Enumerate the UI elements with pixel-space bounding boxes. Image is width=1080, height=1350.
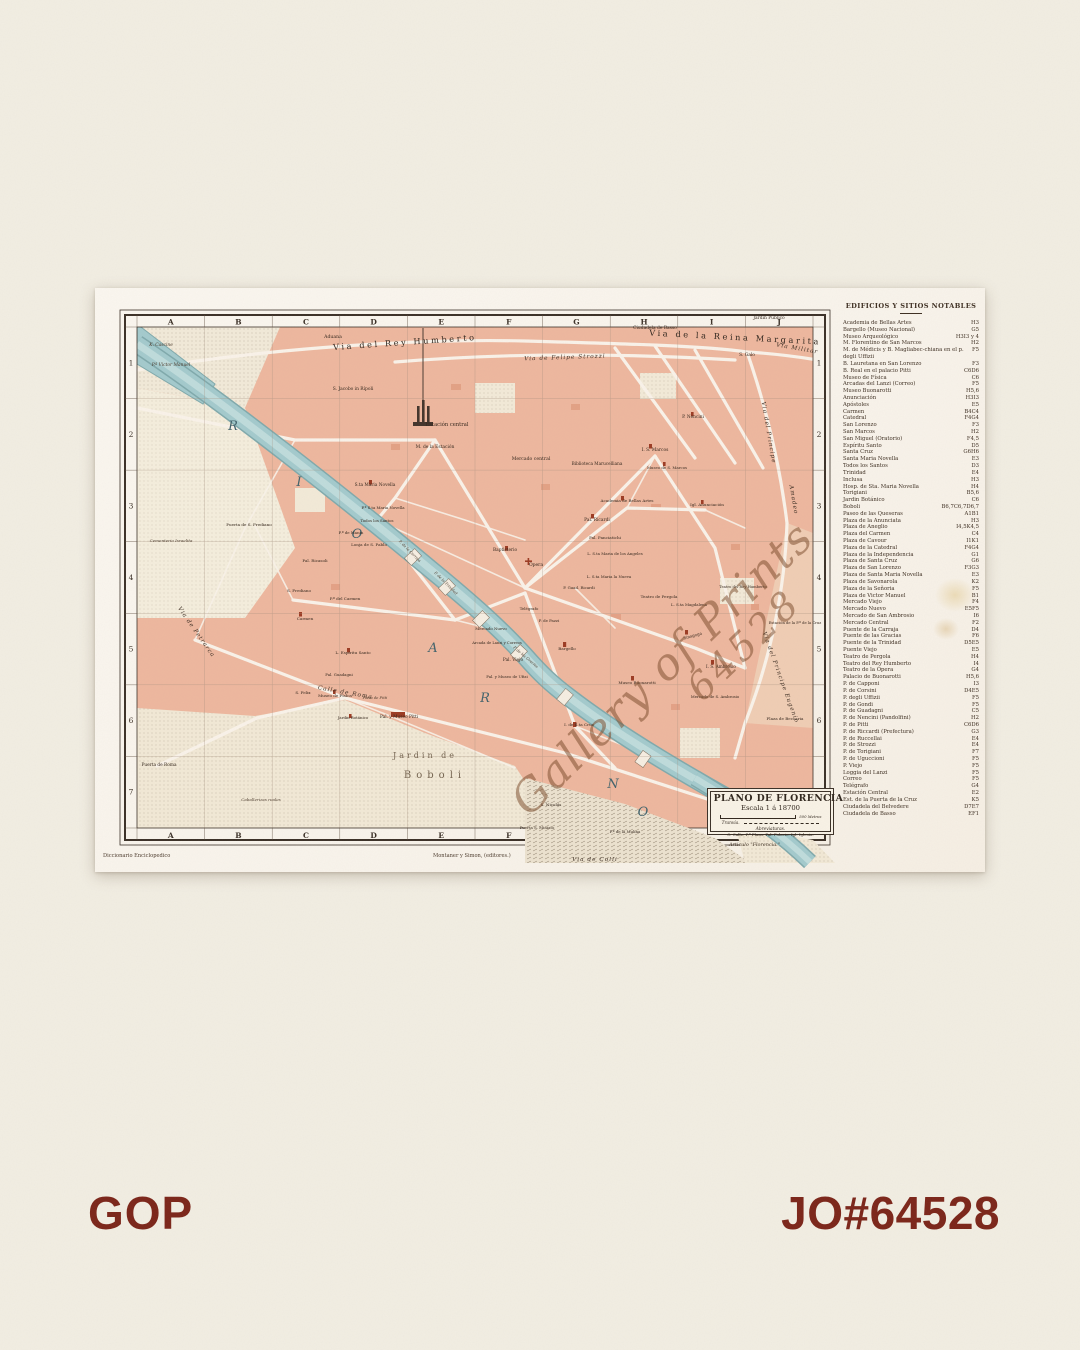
svg-text:K. Cascine: K. Cascine — [148, 343, 173, 348]
svg-text:R: R — [479, 691, 490, 706]
legend-entry: Plaza de Santa Maria NovellaE3 — [843, 572, 979, 579]
legend-entry: Teatro de la ÓperaG4 — [843, 667, 979, 674]
svg-text:Plaza de Pitti: Plaza de Pitti — [362, 696, 388, 700]
legend-entry: Espíritu SantoD5 — [843, 443, 979, 450]
svg-text:Pal. y Museo Pitti: Pal. y Museo Pitti — [380, 715, 419, 720]
legend-entry: Academia de Bellas ArtesH3 — [843, 320, 979, 327]
svg-text:S. Nicolás: S. Nicolás — [541, 802, 562, 807]
svg-text:Teatro del Rey Humberto: Teatro del Rey Humberto — [719, 585, 767, 589]
scale-bar-line — [720, 815, 797, 819]
legend-entry: CatedralF4G4 — [843, 415, 979, 422]
svg-text:P.ª Victor Manuel: P.ª Victor Manuel — [151, 362, 191, 368]
legend-entry: Mercado ViejoF4 — [843, 599, 979, 606]
legend-entry: San LorenzoF3 — [843, 422, 979, 429]
svg-text:Opera: Opera — [529, 562, 543, 568]
svg-text:Museo de Física: Museo de Física — [318, 693, 352, 698]
legend-entry: Arcadas del Lanzi (Correo)F5 — [843, 381, 979, 388]
svg-text:I. de S.ta Cruz: I. de S.ta Cruz — [564, 722, 594, 727]
svg-text:2: 2 — [817, 430, 822, 439]
svg-text:Todos los Santos: Todos los Santos — [361, 518, 394, 523]
svg-text:L. Espíritu Santo: L. Espíritu Santo — [335, 650, 371, 655]
legend-entry: San Miguel (Oratorio)F4,5 — [843, 436, 979, 443]
map-title-box: PLANO DE FLORENCIA Escala 1 á 18700 500 … — [707, 788, 834, 835]
svg-text:P.ª S.ta Maria Novella: P.ª S.ta Maria Novella — [361, 505, 405, 510]
svg-text:P.ª de Manin: P.ª de Manin — [339, 530, 364, 535]
svg-text:M. de la Estación: M. de la Estación — [416, 445, 455, 450]
svg-text:Carmen: Carmen — [297, 616, 314, 621]
tram-legend: Tranvía. — [722, 821, 820, 826]
svg-text:A: A — [167, 318, 174, 327]
legend-entry: Plaza de la AnunciataH3 — [843, 518, 979, 525]
tram-line-sample — [744, 823, 820, 824]
legend-entry: Jardin BotánicoC6 — [843, 497, 979, 504]
svg-text:Jardin de: Jardin de — [392, 751, 457, 760]
svg-text:B: B — [235, 318, 241, 327]
svg-text:N: N — [606, 777, 619, 792]
legend-entry: M. de Médicis y B. Magliabec-chiana en e… — [843, 347, 979, 361]
svg-text:Plaza de Beccaria: Plaza de Beccaria — [767, 716, 804, 721]
svg-text:P. Nencini: P. Nencini — [682, 415, 704, 420]
map-title: PLANO DE FLORENCIA — [714, 793, 828, 804]
legend-rule — [900, 313, 922, 314]
map-art — [137, 324, 829, 863]
svg-text:A: A — [427, 641, 437, 656]
svg-text:Jardin Público: Jardin Público — [752, 315, 785, 321]
scale-bar: 500 Metros — [720, 814, 822, 819]
legend-entry: Plaza del CarmenC4 — [843, 531, 979, 538]
svg-text:A: A — [167, 831, 174, 840]
legend-entry: P. de UguccioniF5 — [843, 756, 979, 763]
svg-text:L. S.ta Maria la Nueva: L. S.ta Maria la Nueva — [587, 574, 632, 579]
legend-entry: Museo ArqueológicoH3I3 y 4 — [843, 334, 979, 341]
svg-text:Museo de S. Marcos: Museo de S. Marcos — [647, 465, 687, 470]
svg-text:Ciudadela de Basso: Ciudadela de Basso — [633, 326, 677, 331]
svg-text:G: G — [573, 318, 579, 327]
svg-text:Aduana: Aduana — [323, 334, 342, 340]
legend-entry: Plaza de CavourI1K1 — [843, 538, 979, 545]
legend-entry: AnunciaciónH3I3 — [843, 395, 979, 402]
svg-text:Igl. Anunciación: Igl. Anunciación — [690, 502, 724, 507]
svg-text:P. de Pazzi: P. de Pazzi — [539, 618, 560, 623]
brand-text: GOP — [88, 1186, 193, 1240]
svg-text:3: 3 — [129, 501, 134, 510]
legend-panel: EDIFICIOS Y SITIOS NOTABLES Academia de … — [843, 302, 979, 817]
svg-text:P.ª del Carmen: P.ª del Carmen — [330, 596, 361, 601]
svg-text:E: E — [438, 831, 444, 840]
svg-text:Baptisterio: Baptisterio — [493, 548, 517, 553]
svg-text:Mercado de S. Ambrosio: Mercado de S. Ambrosio — [691, 694, 740, 699]
legend-entry: Hosp. de Sta. Maria NovellaH4 — [843, 484, 979, 491]
svg-text:4: 4 — [817, 573, 822, 582]
svg-text:Teatro de Pergola: Teatro de Pergola — [641, 594, 678, 599]
svg-text:L. S.ta Maria de los Angeles: L. S.ta Maria de los Angeles — [587, 551, 642, 556]
job-number: JO#64528 — [781, 1186, 1000, 1240]
legend-entry: Plaza de Santa CruzG6 — [843, 558, 979, 565]
svg-text:Mercado Nuevo: Mercado Nuevo — [475, 626, 507, 631]
svg-text:7: 7 — [129, 788, 134, 797]
legend-entry: CarmenB4C4 — [843, 409, 979, 416]
legend-entry: Mercado de San AmbrosioI6 — [843, 613, 979, 620]
svg-text:Mercado central: Mercado central — [512, 456, 551, 462]
legend-entry: Mercado CentralF2 — [843, 620, 979, 627]
svg-text:S. Frediano: S. Frediano — [287, 588, 311, 593]
legend-entry: P. de TorigianiF7 — [843, 749, 979, 756]
legend-entry: Paseo de las QueserasA1B1 — [843, 511, 979, 518]
legend-entry: P. ViejoF5 — [843, 763, 979, 770]
legend-entry: Puente de la TrinidadD5E5 — [843, 640, 979, 647]
legend-entry: P. de StrozziE4 — [843, 742, 979, 749]
svg-text:P. Guad. Ricardi: P. Guad. Ricardi — [563, 585, 595, 590]
legend-entry: Mercado NuevoE5F5 — [843, 606, 979, 613]
legend-entry: Santa Maria NovellaE3 — [843, 456, 979, 463]
legend-entry: Loggia del LanziF5 — [843, 770, 979, 777]
svg-text:1: 1 — [129, 358, 134, 367]
legend-entry: Puente de la CarrajaD4 — [843, 627, 979, 634]
legend-entry: P. de PittiC6D6 — [843, 722, 979, 729]
legend-entry: Ciudadela de BassoEF1 — [843, 811, 979, 818]
legend-entry: P. de GondiF5 — [843, 702, 979, 709]
svg-text:Pal. Ricardi: Pal. Ricardi — [584, 518, 610, 523]
svg-text:Lonja de S. Pablo: Lonja de S. Pablo — [351, 542, 387, 547]
legend-entries: Academia de Bellas ArtesH3Bargello (Muse… — [843, 320, 979, 817]
legend-entry: B. Lauretana en San LorenzoF3 — [843, 361, 979, 368]
legend-entry: TrinidadE4 — [843, 470, 979, 477]
svg-text:S.ta Maria Novella: S.ta Maria Novella — [355, 483, 396, 488]
legend-entry: BoboliB6,7C6,7D6,7 — [843, 504, 979, 511]
svg-text:Puerta de Roma: Puerta de Roma — [141, 763, 176, 768]
svg-text:O: O — [638, 805, 649, 820]
svg-text:D: D — [370, 318, 377, 327]
svg-text:Museo Buonarotti: Museo Buonarotti — [618, 680, 656, 685]
legend-entry: Plaza de la IndependenciaG1 — [843, 552, 979, 559]
svg-text:Boboli: Boboli — [404, 770, 466, 781]
legend-entry: Palacio de BuonarottiH5,6 — [843, 674, 979, 681]
svg-text:Estación central: Estación central — [426, 421, 469, 428]
svg-text:4: 4 — [129, 573, 134, 582]
svg-text:Biblioteca Marucelliana: Biblioteca Marucelliana — [572, 461, 623, 466]
svg-text:Via de Colli: Via de Colli — [572, 857, 618, 863]
legend-title: EDIFICIOS Y SITIOS NOTABLES — [843, 302, 979, 310]
svg-text:Puerta S. Miniato: Puerta S. Miniato — [520, 825, 555, 830]
legend-entry: Plaza de Victor ManuelB1 — [843, 593, 979, 600]
svg-text:Pal. y Museo de Ufizi: Pal. y Museo de Ufizi — [486, 674, 528, 679]
svg-text:Pal. Guadagni: Pal. Guadagni — [325, 672, 353, 677]
svg-text:E: E — [438, 318, 444, 327]
tram-label: Tranvía. — [722, 821, 740, 826]
svg-text:Pal. Viejo: Pal. Viejo — [503, 658, 524, 663]
svg-text:5: 5 — [129, 645, 134, 654]
legend-entry: ApóstolesE5 — [843, 402, 979, 409]
legend-entry: P. degli UffiziiF5 — [843, 695, 979, 702]
svg-text:5: 5 — [817, 645, 822, 654]
legend-entry: Todos los SantosD3 — [843, 463, 979, 470]
svg-text:L. S.ta Magdalena: L. S.ta Magdalena — [671, 602, 708, 607]
credit-publisher: Diccionario Enciclopedico — [103, 853, 170, 859]
legend-entry: Ciudadela del BelvedereD7E7 — [843, 804, 979, 811]
svg-text:F: F — [506, 318, 512, 327]
svg-text:D: D — [370, 831, 377, 840]
legend-entry: Est. de la Puerta de la CruzK5 — [843, 797, 979, 804]
legend-entry: P. de CapponiI3 — [843, 681, 979, 688]
svg-text:R: R — [227, 419, 238, 434]
legend-entry: Plaza de San LorenzoF3G3 — [843, 565, 979, 572]
legend-entry: B. Real en el palacio PittiC6D6 — [843, 368, 979, 375]
legend-entry: P. de Riccardi (Prefectura)G3 — [843, 729, 979, 736]
credit-editors: Montaner y Simon, (editores.) — [433, 853, 511, 859]
svg-text:2: 2 — [129, 430, 134, 439]
svg-text:Bargello: Bargello — [558, 646, 576, 651]
map-sheet: ABCDEFGHIJABCDEF12345671234567 Via del R… — [95, 288, 985, 872]
post-canvas: { "page": { "background_color": "#f2eee3… — [0, 0, 1080, 1350]
svg-text:6: 6 — [129, 716, 134, 725]
legend-entry: P. de CorsiniD4E5 — [843, 688, 979, 695]
svg-text:Puerta de S. Frediano: Puerta de S. Frediano — [226, 522, 272, 527]
svg-text:B: B — [235, 831, 241, 840]
legend-entry: Bargello (Museo Nacional)G5 — [843, 327, 979, 334]
article-note: Articulo "Florencia." — [729, 842, 780, 848]
legend-entry: Puente ViejoE5 — [843, 647, 979, 654]
svg-text:Pal. Ricasoli: Pal. Ricasoli — [302, 558, 328, 563]
svg-text:3: 3 — [817, 501, 822, 510]
svg-text:S. Jacobo in Rípoli: S. Jacobo in Rípoli — [333, 387, 374, 392]
svg-text:I: I — [295, 475, 302, 490]
svg-text:I. S. Marcos: I. S. Marcos — [642, 448, 669, 453]
legend-entry: San MarcosH2 — [843, 429, 979, 436]
legend-entry: Plaza de AneglioI4,5K4,5 — [843, 524, 979, 531]
svg-text:I. S. Ambrosio: I. S. Ambrosio — [706, 664, 736, 669]
svg-text:Pal. Panciatichi: Pal. Panciatichi — [589, 535, 621, 540]
svg-text:S. Felix: S. Felix — [295, 690, 311, 695]
svg-text:I: I — [710, 318, 714, 327]
svg-text:P.ª de la Mulina: P.ª de la Mulina — [610, 829, 641, 834]
map-graphic: ABCDEFGHIJABCDEF12345671234567 Via del R… — [95, 288, 843, 872]
legend-entry: P. de Nencini (Pandolfini)H2 — [843, 715, 979, 722]
svg-text:S. Galo: S. Galo — [739, 353, 755, 358]
legend-entry: Teatro de PergolaH4 — [843, 654, 979, 661]
legend-entry: Plaza de la SeñoriaF5 — [843, 586, 979, 593]
legend-entry: Santa CruzG6H6 — [843, 449, 979, 456]
map-scale: Escala 1 á 18700 — [714, 804, 828, 812]
legend-entry: Plaza de la CatedralF4G4 — [843, 545, 979, 552]
legend-entry: P. de RuccellaiE4 — [843, 736, 979, 743]
abbreviations-text: C. Calle. P.ª Plaza. Pal. Palacio. Igl. … — [714, 832, 828, 837]
svg-text:Arcada de Lanzi y Correos: Arcada de Lanzi y Correos — [471, 641, 522, 645]
legend-entry: Plaza de SavonarolaK2 — [843, 579, 979, 586]
footer: GOP JO#64528 — [0, 1186, 1080, 1240]
legend-entry: InclusaH3 — [843, 477, 979, 484]
svg-text:Caballerizas reales: Caballerizas reales — [241, 797, 281, 802]
svg-text:6: 6 — [817, 716, 822, 725]
svg-text:Jardin Botánico: Jardin Botánico — [337, 715, 369, 720]
svg-text:F: F — [506, 831, 512, 840]
map-title-box-inner: PLANO DE FLORENCIA Escala 1 á 18700 500 … — [710, 791, 832, 833]
legend-entry: Estación CentralE2 — [843, 790, 979, 797]
svg-text:C: C — [303, 318, 309, 327]
legend-entry: Puente de las GraciasF6 — [843, 633, 979, 640]
svg-text:Estación de la P.ª de la Cruz: Estación de la P.ª de la Cruz — [769, 621, 822, 625]
scale-bar-label: 500 Metros — [799, 814, 821, 819]
svg-text:Cementerio Israelita: Cementerio Israelita — [150, 538, 193, 543]
svg-text:1: 1 — [817, 358, 822, 367]
legend-entry: Museo BuonarottiH5,6 — [843, 388, 979, 395]
svg-text:Academia de Bellas Artes: Academia de Bellas Artes — [600, 498, 654, 503]
svg-text:Telégrafo: Telégrafo — [520, 606, 539, 611]
svg-text:C: C — [303, 831, 309, 840]
